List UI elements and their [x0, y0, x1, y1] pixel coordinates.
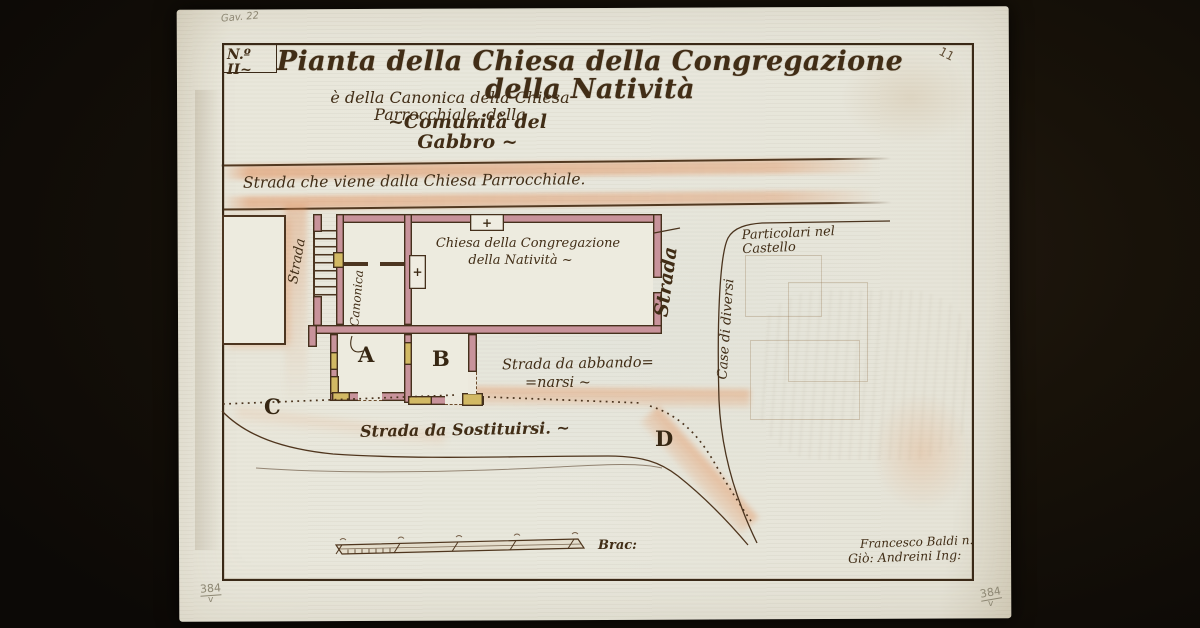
church-label-line2: della Natività ~ [428, 254, 613, 268]
road-abandon-label-2: =narsi ~ [525, 376, 591, 391]
church-label-line1: Chiesa della Congregazione [428, 237, 628, 251]
wall-segment-new [408, 396, 432, 405]
point-d-label: D [655, 428, 673, 450]
wall-segment-new [333, 252, 344, 268]
wall-segment-new [330, 352, 338, 370]
road-abandon-label-1: Strada da abbando= [502, 356, 654, 374]
pencil-stamp-bottom-right-mark: v [988, 599, 993, 609]
road-top-label: Strada che viene dalla Chiesa Parrocchia… [243, 171, 586, 191]
room-b-label: B [432, 348, 450, 370]
wall-segment [408, 214, 662, 223]
wall-segment [336, 214, 344, 325]
wall-segment [468, 334, 477, 372]
road-substitute-label: Strada da Sostituirsi. ~ [360, 420, 570, 440]
left-building-block [222, 215, 286, 345]
signature-line2: Giò: Andreini Ing: [848, 548, 962, 565]
wall-segment [313, 214, 322, 232]
door-opening [358, 392, 382, 401]
wall-segment [310, 325, 662, 334]
wall-segment-new [332, 392, 350, 401]
map-subtitle-2: ~Comunità del Gabbro ~ [360, 113, 575, 153]
scale-unit-label: Brac: [598, 539, 637, 553]
wall-segment [308, 325, 317, 347]
door-opening [445, 396, 462, 405]
altar-niche: + [470, 214, 504, 231]
photograph-background: N.º II~ Gav. 22 11 384 v 384 v Pianta de… [0, 0, 1200, 628]
wall-segment-new [462, 393, 483, 406]
wall-segment-new [404, 342, 412, 365]
wall-segment [313, 296, 322, 326]
point-c-label: C [264, 396, 281, 418]
cross-icon: + [482, 216, 492, 230]
wall-segment [336, 214, 414, 223]
altar-niche: + [409, 255, 426, 289]
pencil-stamp-bottom-left-mark: v [208, 595, 213, 605]
room-a-label: A [358, 344, 374, 366]
wall-partition [380, 262, 404, 266]
cross-icon: + [412, 265, 422, 279]
door-opening [468, 372, 477, 394]
